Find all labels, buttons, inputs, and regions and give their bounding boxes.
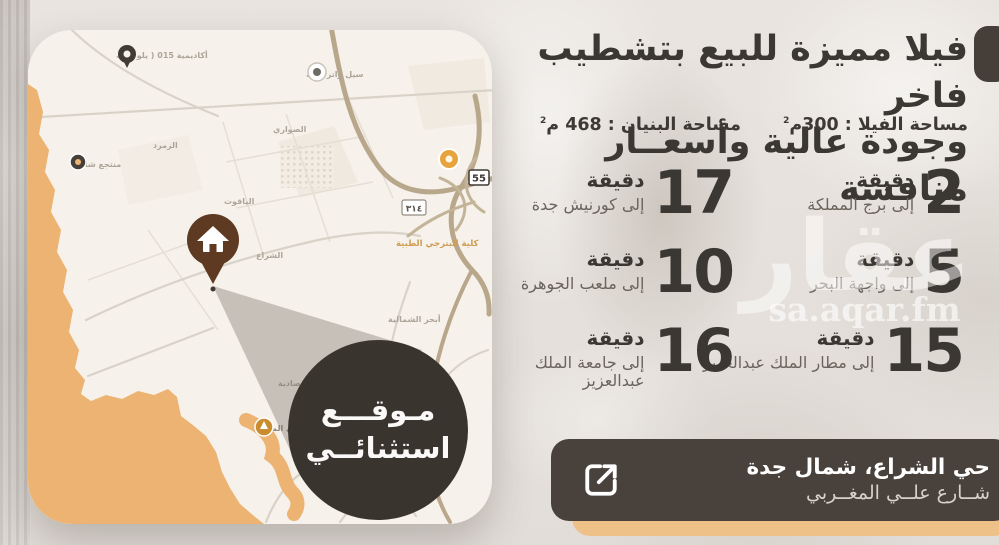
stat-unit: دقيقة	[586, 168, 644, 192]
map-card: 55 ٣١٤ أكاديمية 015 ( يلو بارك سيل واتر …	[28, 30, 492, 524]
stat-minutes: 16	[654, 323, 734, 380]
address-bar[interactable]: حي الشراع، شمال جدة شــارع علــي المغــر…	[551, 439, 999, 521]
stat-minutes: 5	[923, 244, 963, 301]
stat-unit: دقيقة	[856, 168, 914, 192]
title-line-1: فيلا مميزة للبيع بتشطيب فاخر	[528, 26, 968, 119]
address-text: حي الشراع، شمال جدة شــارع علــي المغــر…	[746, 455, 990, 506]
stat-university: 16 دقيقة إلى جامعة الملك عبدالعزيز	[527, 323, 733, 391]
areas-row: مساحة الفيلا : 300م2 مساحة البنيان : 468…	[540, 115, 968, 135]
map-canvas: 55 ٣١٤ أكاديمية 015 ( يلو بارك سيل واتر …	[28, 30, 492, 524]
stat-minutes: 10	[654, 244, 734, 301]
highway-shield-314: ٣١٤	[402, 200, 426, 215]
stat-unit: دقيقة	[816, 326, 874, 350]
stat-corniche: 17 دقيقة إلى كورنيش جدة	[527, 165, 733, 222]
stat-stadium: 10 دقيقة إلى ملعب الجوهرة	[527, 244, 733, 301]
stat-destination: إلى برج المملكة	[807, 196, 914, 214]
listing-infographic: { "title": { "line1": "فيلا مميزة للبيع …	[0, 0, 999, 545]
building-area: مساحة البنيان : 468 م2	[540, 115, 741, 135]
svg-text:الصواري: الصواري	[273, 125, 307, 134]
stat-unit: دقيقة	[586, 326, 644, 350]
svg-text:الشراع: الشراع	[256, 251, 283, 260]
svg-text:٣١٤: ٣١٤	[406, 205, 422, 215]
stat-unit: دقيقة	[586, 247, 644, 271]
external-link-icon[interactable]	[579, 458, 623, 502]
svg-text:كلية البترجي الطبية: كلية البترجي الطبية	[396, 239, 479, 249]
stat-unit: دقيقة	[856, 247, 914, 271]
stat-destination: إلى جامعة الملك عبدالعزيز	[527, 354, 645, 391]
stat-minutes: 2	[923, 165, 963, 222]
poi-orange-pin	[439, 149, 459, 169]
svg-text:55: 55	[472, 174, 486, 185]
district-line: حي الشراع، شمال جدة	[746, 455, 990, 482]
svg-text:الزمرد: الزمرد	[153, 141, 178, 150]
stat-airport: 15 دقيقة إلى مطار الملك عبدالعزيز	[757, 323, 963, 391]
location-badge: مـوقـــع استثنائــي	[288, 340, 468, 520]
poi-waterpark-pin	[308, 63, 326, 81]
stat-minutes: 17	[654, 165, 734, 222]
stat-destination: إلى ملعب الجوهرة	[521, 275, 645, 293]
svg-text:مـوقـــع: مـوقـــع	[321, 393, 436, 427]
stat-kingdom-tower: 2 دقيقة إلى برج المملكة	[757, 165, 963, 222]
title-accent-bar	[974, 26, 999, 82]
stat-minutes: 15	[884, 323, 964, 380]
stat-destination: إلى واجهة البحر	[810, 275, 914, 293]
background-left-edge	[0, 0, 30, 545]
stat-waterfront: 5 دقيقة إلى واجهة البحر	[757, 244, 963, 301]
villa-area: مساحة الفيلا : 300م2	[783, 115, 968, 135]
poi-beach-pin	[255, 418, 273, 436]
poi-resort-pin	[70, 154, 86, 170]
svg-text:أبحر الشمالية: أبحر الشمالية	[388, 314, 441, 324]
travel-time-stats: 2 دقيقة إلى برج المملكة 17 دقيقة إلى كور…	[527, 165, 963, 391]
stat-destination: إلى كورنيش جدة	[532, 196, 645, 214]
svg-text:استثنائــي: استثنائــي	[306, 431, 451, 465]
street-line: شــارع علــي المغــربي	[746, 482, 990, 506]
highway-shield-55: 55	[469, 170, 489, 185]
svg-text:الياقوت: الياقوت	[224, 197, 255, 206]
